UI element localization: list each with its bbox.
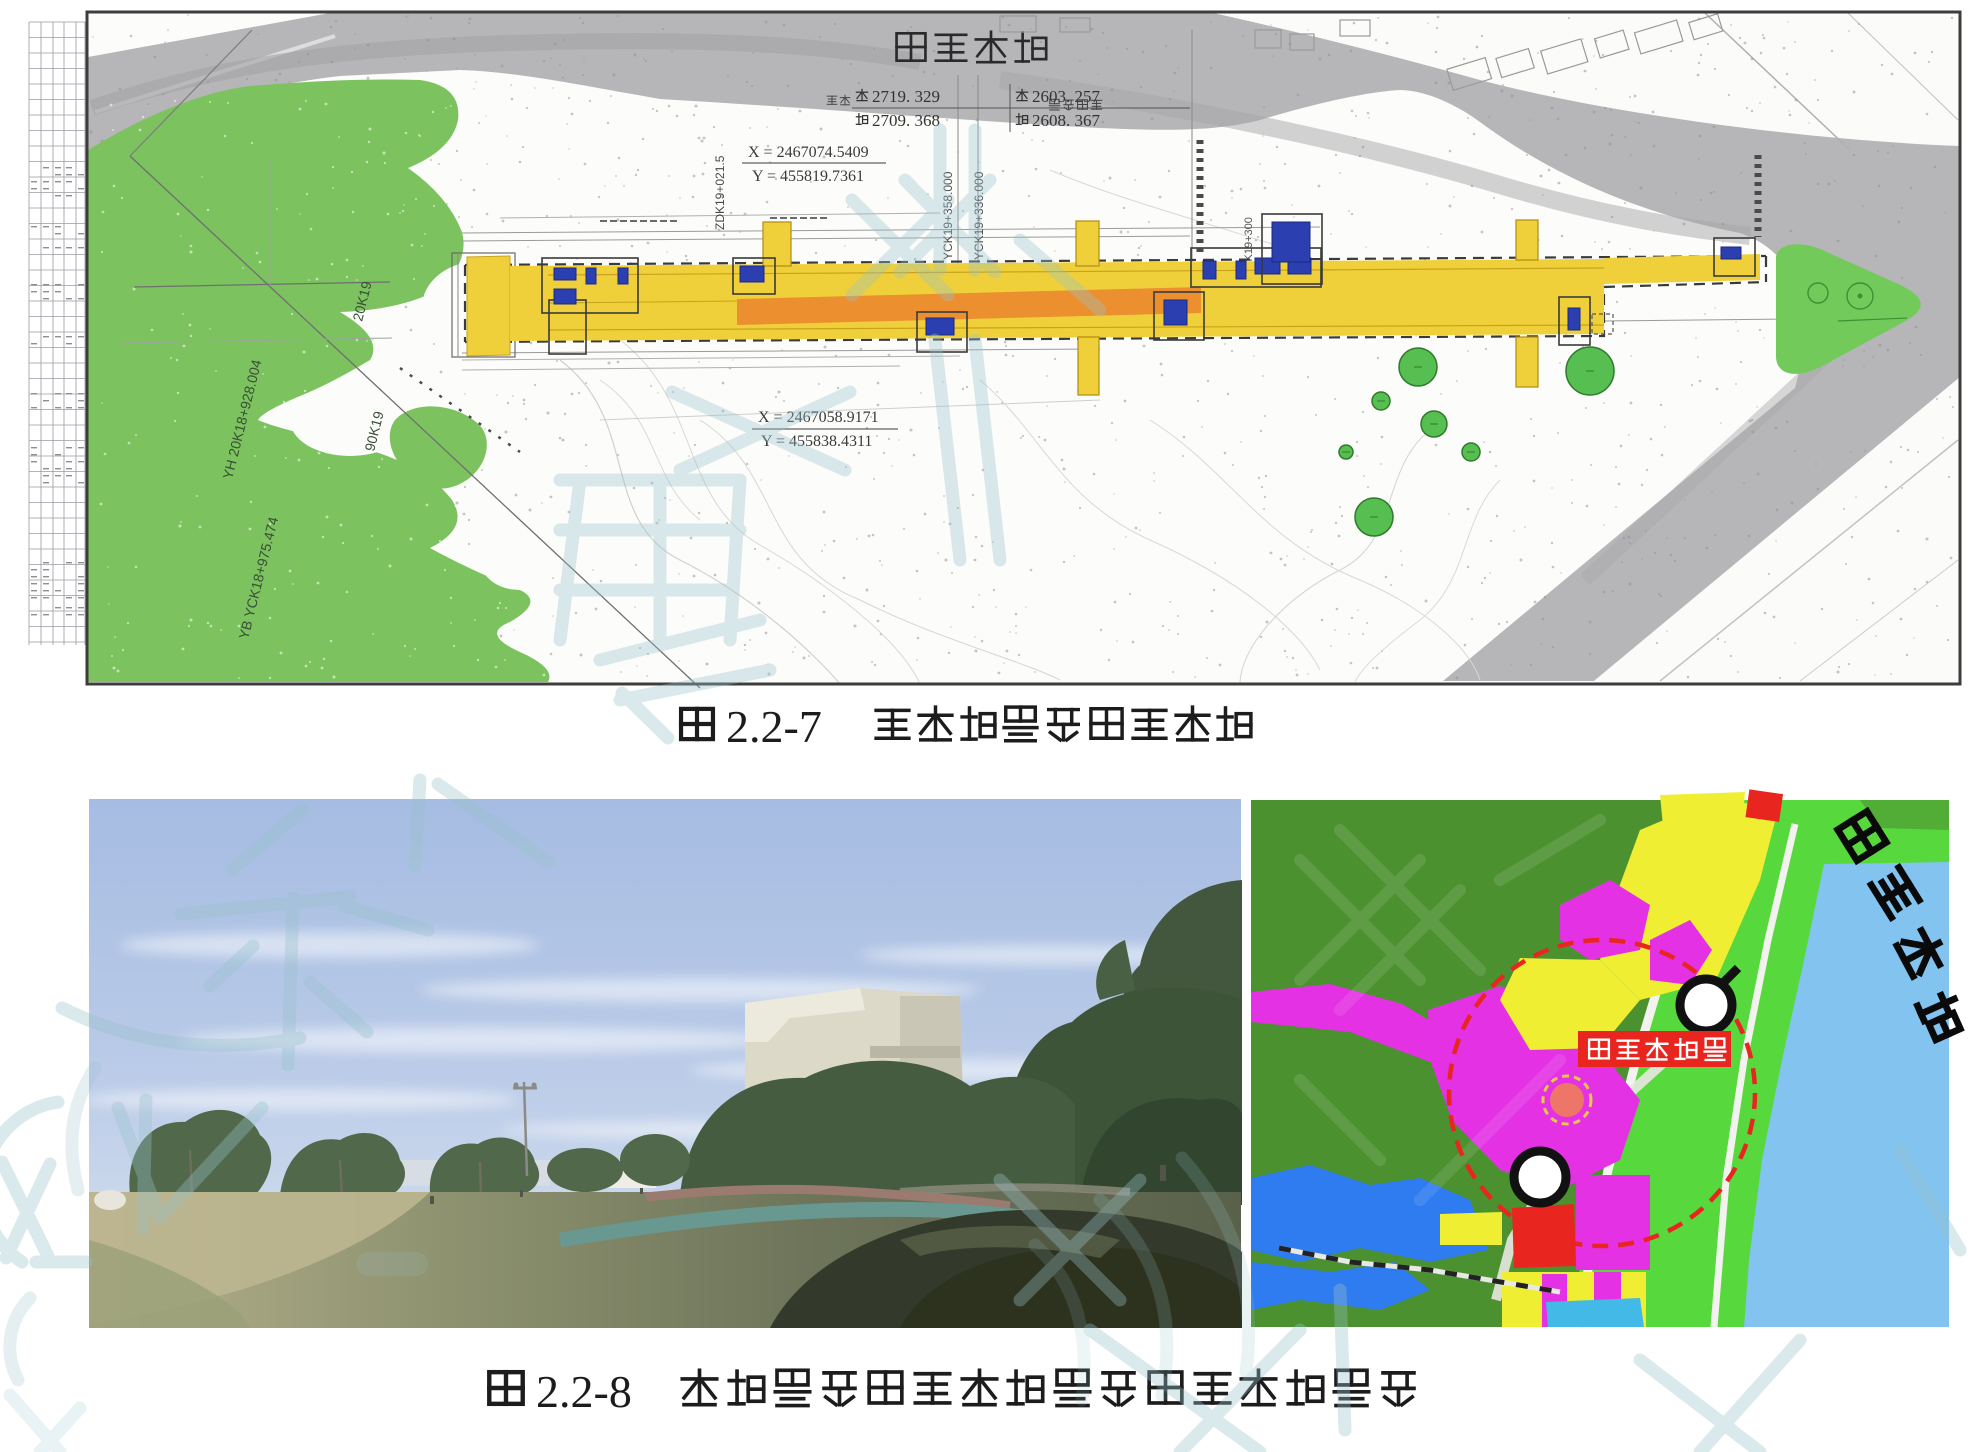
- svg-text:Y = 455819.7361: Y = 455819.7361: [752, 168, 864, 185]
- svg-text:2608. 367: 2608. 367: [1032, 111, 1101, 130]
- svg-text:ZDK19+021.5: ZDK19+021.5: [713, 155, 727, 230]
- svg-text:2709. 368: 2709. 368: [872, 111, 940, 130]
- svg-text:2.2-8: 2.2-8: [536, 1366, 632, 1417]
- svg-text:2.2-7: 2.2-7: [726, 701, 822, 752]
- svg-text:2719. 329: 2719. 329: [872, 87, 940, 106]
- svg-text:X = 2467074.5409: X = 2467074.5409: [748, 144, 869, 161]
